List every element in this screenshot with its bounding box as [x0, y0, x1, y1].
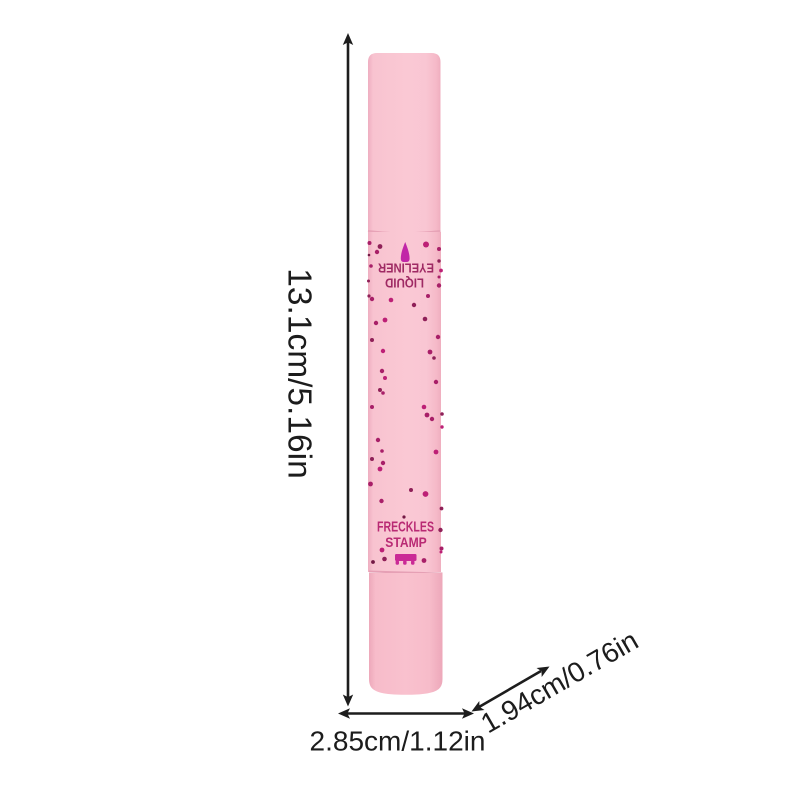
svg-text:13.1cm/5.16in: 13.1cm/5.16in: [281, 268, 318, 478]
svg-text:FRECKLES: FRECKLES: [377, 519, 434, 536]
svg-text:EYELINER: EYELINER: [377, 260, 434, 275]
svg-text:LIQUID: LIQUID: [385, 276, 424, 291]
svg-text:STAMP: STAMP: [385, 534, 427, 550]
svg-text:2.85cm/1.12in: 2.85cm/1.12in: [310, 726, 486, 757]
